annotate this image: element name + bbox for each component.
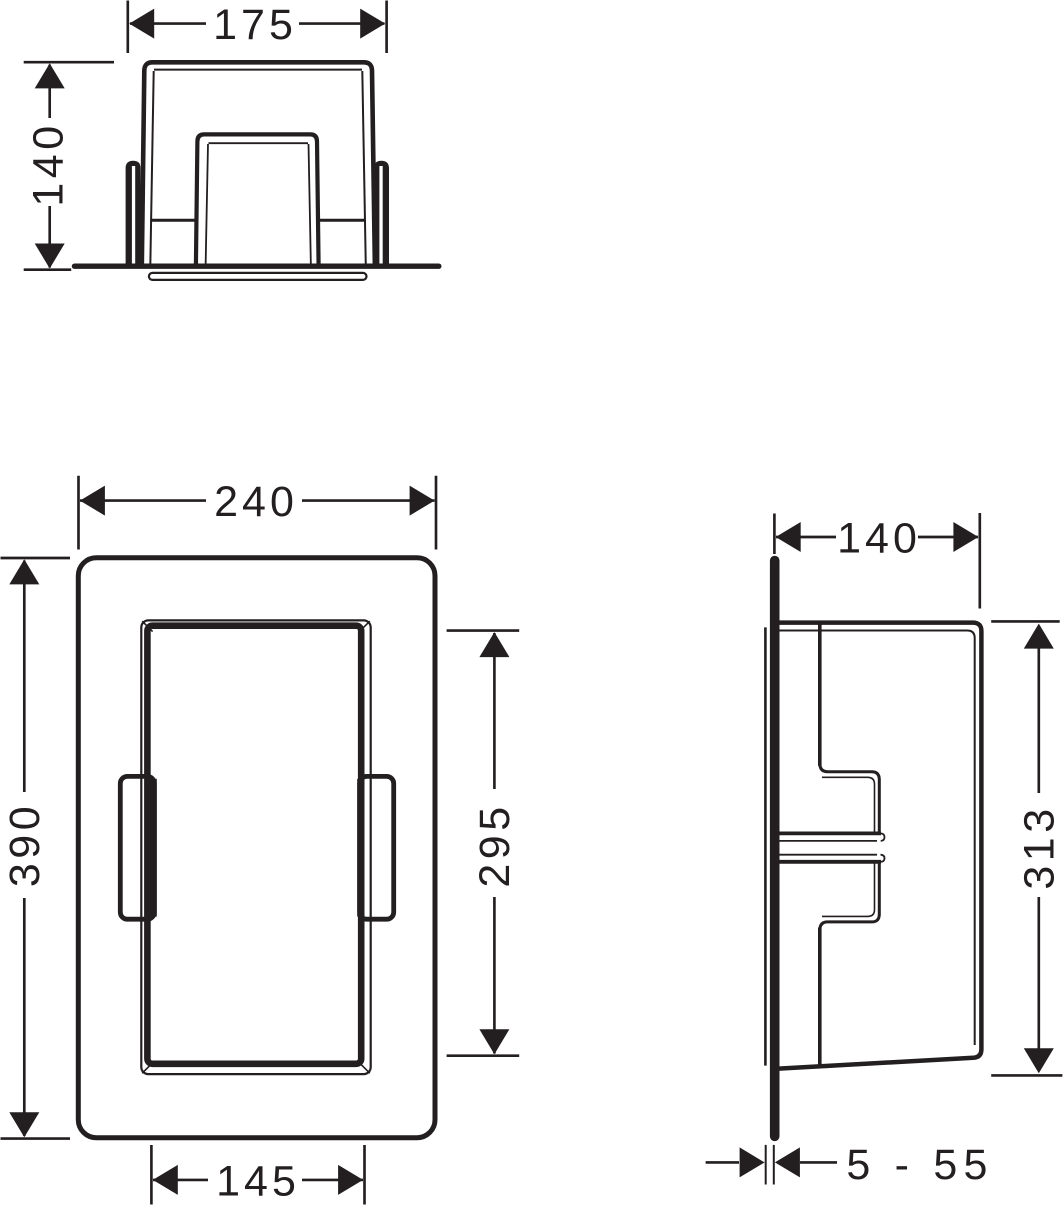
svg-text:240: 240	[214, 478, 298, 526]
svg-text:295: 295	[471, 802, 519, 887]
svg-text:145: 145	[216, 1157, 300, 1205]
svg-text:313: 313	[1016, 804, 1064, 889]
svg-text:140: 140	[25, 121, 73, 206]
svg-text:175: 175	[213, 1, 297, 49]
svg-text:5 - 55: 5 - 55	[846, 1141, 993, 1189]
svg-text:140: 140	[837, 515, 921, 563]
svg-text:390: 390	[1, 802, 49, 887]
